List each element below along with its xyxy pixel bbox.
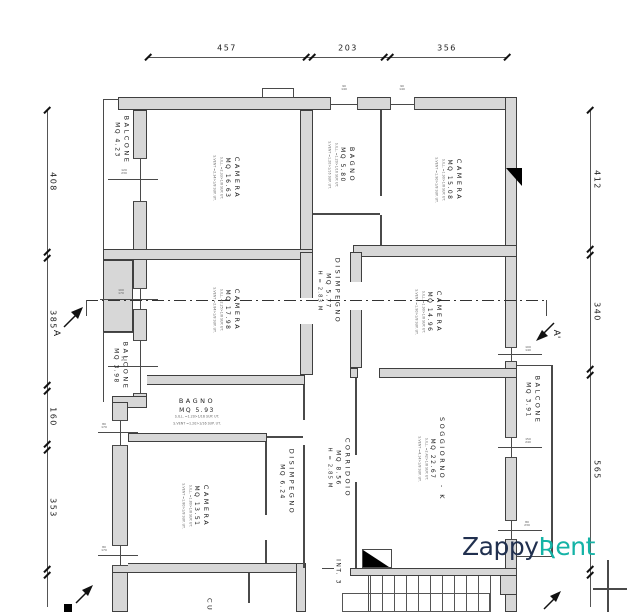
balcone2-edge-left <box>103 332 104 402</box>
room-label-disimpegno1: DISIMPEGNO MQ 5.77 H = 2.83 M <box>317 258 342 325</box>
balcone2-edge-top <box>103 332 133 333</box>
door-camera3 <box>300 298 313 324</box>
partial-wall-bottom-right-v <box>607 560 609 612</box>
partial-wall-bottom-right-h <box>593 588 627 590</box>
partition-camera5-right-a <box>265 442 267 515</box>
window-axis <box>108 179 158 180</box>
dim-top-356: 356 <box>437 44 457 53</box>
opening-tag: 100140 <box>525 346 531 352</box>
partition-camera5-right-b <box>265 540 267 563</box>
dim-top-457: 457 <box>217 44 237 53</box>
window-balcone2-door <box>133 340 147 394</box>
logo-zappy: Zappy <box>462 532 538 561</box>
room-label-balcone2: BALCONE MQ 3.98 <box>113 342 130 391</box>
partition-bagno2-ext <box>267 436 303 438</box>
wall-camera2-bottom <box>353 245 517 257</box>
room-label-camera1: CAMERA MQ 16.63 S.ILL. =2.33>1/8 SUP. UT… <box>211 137 241 220</box>
opening-tag: 100170 <box>118 289 124 295</box>
partition-bagno1-right-b <box>380 215 382 245</box>
opening-tag: 150240 <box>525 438 531 444</box>
partition-corridor-right-a <box>355 378 357 455</box>
door-camera4 <box>350 282 362 310</box>
balcone1-edge-left <box>103 99 104 249</box>
partition-bagno1-right-a <box>380 110 382 196</box>
opening-tag: 80230 <box>524 521 530 527</box>
section-arrow-a <box>60 304 86 330</box>
unit-label-int3: INT. 3 <box>335 559 342 585</box>
partition-corridor-left-b <box>303 445 305 568</box>
window-axis <box>498 530 542 531</box>
balcone3-edge-top <box>517 365 553 366</box>
balcone1-edge-top <box>103 99 119 100</box>
room-label-bagno2: BAGNO MQ 5.93 S.ILL. =1.20>1/16 SUP. UT.… <box>154 397 240 427</box>
dim-left-408: 408 <box>49 172 58 192</box>
opening-tag: 90140 <box>399 85 405 91</box>
window-axis <box>98 432 138 433</box>
room-label-balcone1: BALCONE MQ 4.23 <box>114 116 131 165</box>
partition-cucina-jamb <box>248 573 250 603</box>
window-bagno2 <box>112 420 128 446</box>
opening-tag: 120230 <box>121 169 127 175</box>
room-label-camera3: CAMERA MQ 17.98 S.ILL. =2.25>1/8 SUP. UT… <box>211 269 241 352</box>
wall-right-step <box>500 575 517 595</box>
wall-stair-landing <box>350 568 517 576</box>
wall-spine-top <box>300 110 313 252</box>
wall-bagno2-bottom <box>128 433 267 442</box>
window-axis <box>322 568 334 569</box>
wall-camera3-bottom <box>133 375 305 385</box>
wall-between-balconies <box>103 260 133 332</box>
section-line-end-right <box>546 300 547 316</box>
floor-plan: 457 203 356 408 385 160 353 412 340 565 <box>0 0 627 612</box>
wall-below-camera1 <box>103 249 313 260</box>
logo-rent: Ʀent <box>538 532 594 561</box>
section-line-end-left <box>86 300 87 316</box>
wall-camera4-bottom-stub <box>350 368 358 378</box>
window-axis <box>98 555 138 556</box>
wall-top <box>118 97 517 110</box>
room-label-camera2: CAMERA MQ 15.08 S.ILL. =1.90>1/8 SUP. UT… <box>433 139 463 222</box>
dim-top-203: 203 <box>338 44 358 53</box>
dim-right-412: 412 <box>593 170 602 190</box>
partition-corridor-right-b <box>355 482 357 568</box>
dim-left-385: 385 <box>49 310 58 330</box>
wall-camera4-left <box>350 252 362 368</box>
dim-left-160: 160 <box>49 407 58 427</box>
section-label-a: A <box>51 330 61 336</box>
window-axis <box>498 447 542 448</box>
opening-tag: 80170 <box>101 423 107 429</box>
room-label-camera5: CAMERA MQ 13.51 S.ILL. =1.80>1/8 SUP. UT… <box>180 465 210 548</box>
window-balcone1-door <box>133 158 147 202</box>
room-label-soggiorno: SOGGIORNO - K MQ 22.67 S.ILL. =2.42>1/8 … <box>416 417 446 501</box>
room-label-bagno1: BAGNO MQ 5.80 S.ILL. =1.20>1/16 SUP. UT.… <box>326 122 356 208</box>
room-label-camera4: CAMERA MQ 14.96 S.ILL. =1.90>1/8 SUP. UT… <box>413 271 443 354</box>
window-axis <box>498 354 542 355</box>
wall-spine-bottom-stub <box>296 563 306 612</box>
dimension-line-top <box>148 57 507 58</box>
partition-bagno1-bottom <box>313 213 380 215</box>
dim-right-565: 565 <box>593 460 602 480</box>
partition-corridor-left-a <box>303 385 305 420</box>
room-label-balcone3: BALCONE MQ 3.91 <box>525 376 542 425</box>
room-label-cucina: CUCINA MQ <box>197 598 214 612</box>
dim-tick <box>503 53 510 60</box>
window-top-bagno1 <box>330 97 358 110</box>
section-label-a1: A' <box>551 330 561 339</box>
balcone3-edge-right <box>551 365 553 557</box>
section-arrow-bottom-right <box>540 588 564 612</box>
opening-tag: 90140 <box>341 85 347 91</box>
window-bay-camera1 <box>262 88 294 98</box>
opening-tag: 120230 <box>121 356 127 362</box>
zappyrent-logo: ZappyƦent <box>462 532 595 561</box>
room-label-corridoio: CORRIDOIO MQ 8.56 H = 2.85 M <box>327 438 352 498</box>
dim-left-353: 353 <box>49 498 58 518</box>
dim-right-340: 340 <box>593 302 602 322</box>
window-top-camera2 <box>390 97 415 110</box>
wall-camera4-bottom <box>379 368 517 378</box>
room-label-disimpegno2: DISIMPEGNO MQ 6.24 <box>279 449 296 516</box>
opening-tag: 80170 <box>101 546 107 552</box>
section-marker-square <box>64 604 72 612</box>
section-arrow-bottom-left <box>72 582 96 606</box>
staircase-lower-flight <box>342 593 490 612</box>
wall-camera5-bottom <box>112 563 304 573</box>
